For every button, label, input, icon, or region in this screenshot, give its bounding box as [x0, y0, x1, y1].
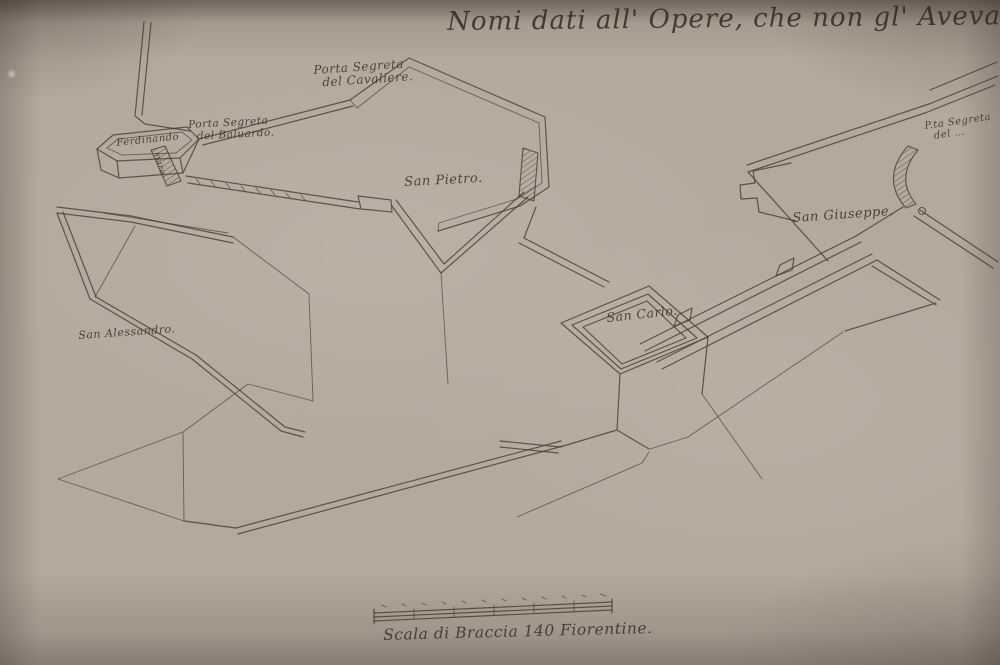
curved-stair	[893, 146, 918, 208]
top-rampart-band	[925, 62, 998, 113]
left-flank-edge	[57, 212, 96, 299]
ravelin-triangle	[58, 432, 184, 521]
terreplein-lines	[95, 213, 228, 297]
bottom-ground-lines	[184, 441, 563, 534]
label-porta-segreta-baluardo: Porta Segreta del Baluardo.	[188, 116, 275, 142]
san-carlo-ground	[650, 332, 843, 479]
san-alessandro-face	[90, 297, 305, 437]
ramp-stairs-san-pietro	[519, 148, 538, 201]
descending-band	[519, 207, 609, 287]
curtain-hatch-ticks	[196, 179, 305, 200]
ground-lines-left	[183, 237, 448, 432]
cavaliere-work-inner	[350, 67, 542, 231]
shallow-v-bottom	[517, 452, 649, 517]
label-san-pietro: San Pietro.	[404, 172, 483, 189]
lower-right-walls	[845, 260, 940, 331]
left-fort-group	[57, 22, 649, 534]
plan-title: Nomi dati all' Opere, che non gl' Avevan…	[447, 2, 1000, 35]
scale-bar-lines	[374, 602, 612, 621]
gate-jog	[358, 196, 392, 212]
paper-speck	[7, 68, 16, 80]
left-flank-top	[57, 207, 233, 243]
right-fort-group	[500, 62, 998, 479]
plan-photograph: Nomi dati all' Opere, che non gl' Avevan…	[0, 0, 1000, 665]
v-shaped-rampart	[392, 192, 528, 273]
plan-title-text: Nomi dati all' Opere, che non gl' Avevan…	[447, 1, 1000, 37]
ramp-jogs	[674, 258, 794, 326]
sheet-edge-lines	[135, 22, 190, 131]
scale-bar	[374, 594, 612, 624]
